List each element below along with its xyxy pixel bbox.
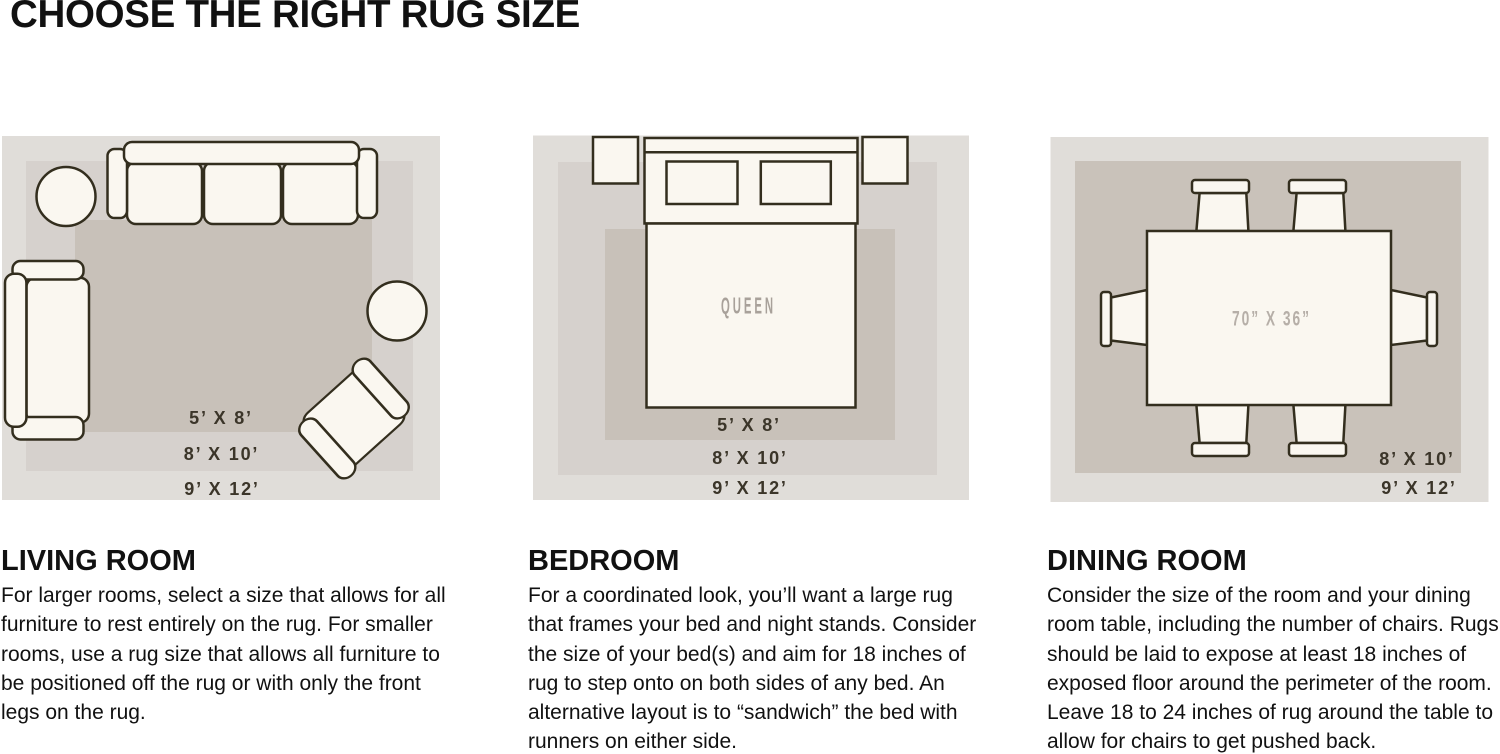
svg-text:5’ X 8’: 5’ X 8’ (717, 415, 781, 435)
svg-text:8’ X 10’: 8’ X 10’ (1379, 449, 1454, 469)
svg-text:9’ X 12’: 9’ X 12’ (712, 478, 787, 498)
svg-text:9’ X 12’: 9’ X 12’ (1381, 478, 1456, 498)
svg-text:8’ X 10’: 8’ X 10’ (184, 444, 259, 464)
svg-text:70” X 36”: 70” X 36” (1232, 308, 1311, 331)
svg-text:5’ X 8’: 5’ X 8’ (189, 408, 253, 428)
svg-text:9’ X 12’: 9’ X 12’ (184, 479, 259, 499)
svg-text:8’ X 10’: 8’ X 10’ (712, 448, 787, 468)
svg-text:QUEEN: QUEEN (721, 293, 776, 319)
